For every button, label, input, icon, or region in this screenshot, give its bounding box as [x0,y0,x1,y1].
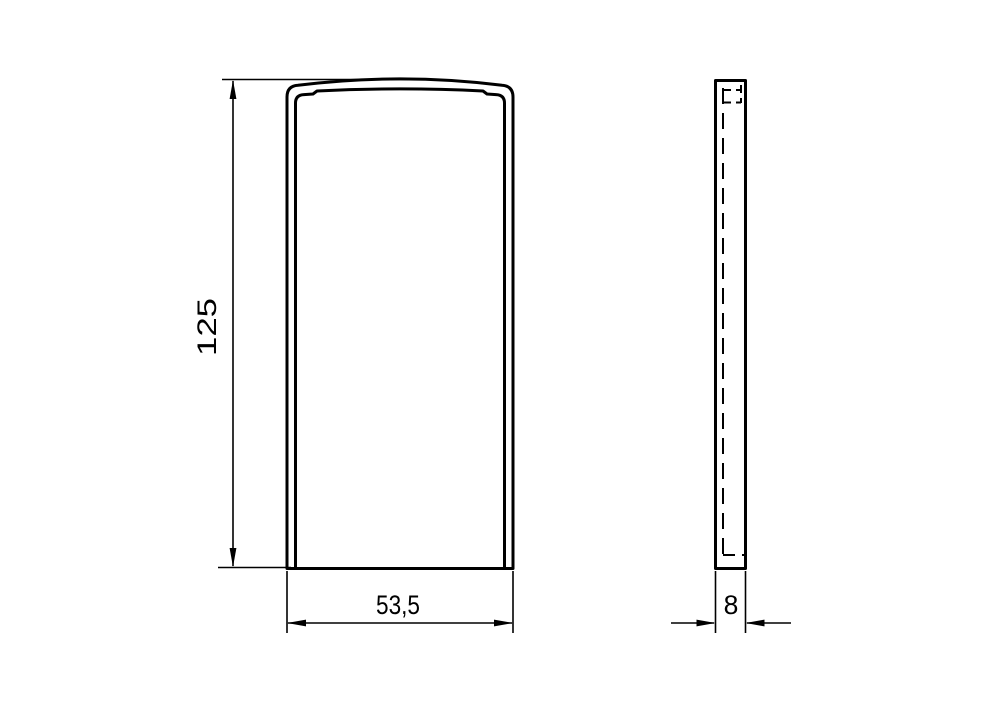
dimension-height: 125 [192,80,427,568]
drawing-canvas: 125 53,5 8 [0,0,1000,707]
thickness-dimension-label: 8 [724,590,739,620]
arrow-right-icon [697,620,716,627]
front-view-outer-contour [287,79,513,569]
height-dimension-label: 125 [192,298,222,356]
technical-drawing: 125 53,5 8 [0,0,1000,707]
front-view-inner-contour [296,89,505,569]
arrow-up-icon [230,80,237,99]
side-view-outline [716,81,746,569]
arrow-left-icon [287,620,306,627]
arrow-right-icon [494,620,513,627]
dimension-width: 53,5 [287,571,513,633]
width-dimension-label: 53,5 [376,590,420,620]
arrow-left-icon [746,620,765,627]
arrow-down-icon [230,548,237,567]
dimension-thickness: 8 [671,571,791,633]
front-view [287,79,513,569]
side-view [716,81,746,569]
